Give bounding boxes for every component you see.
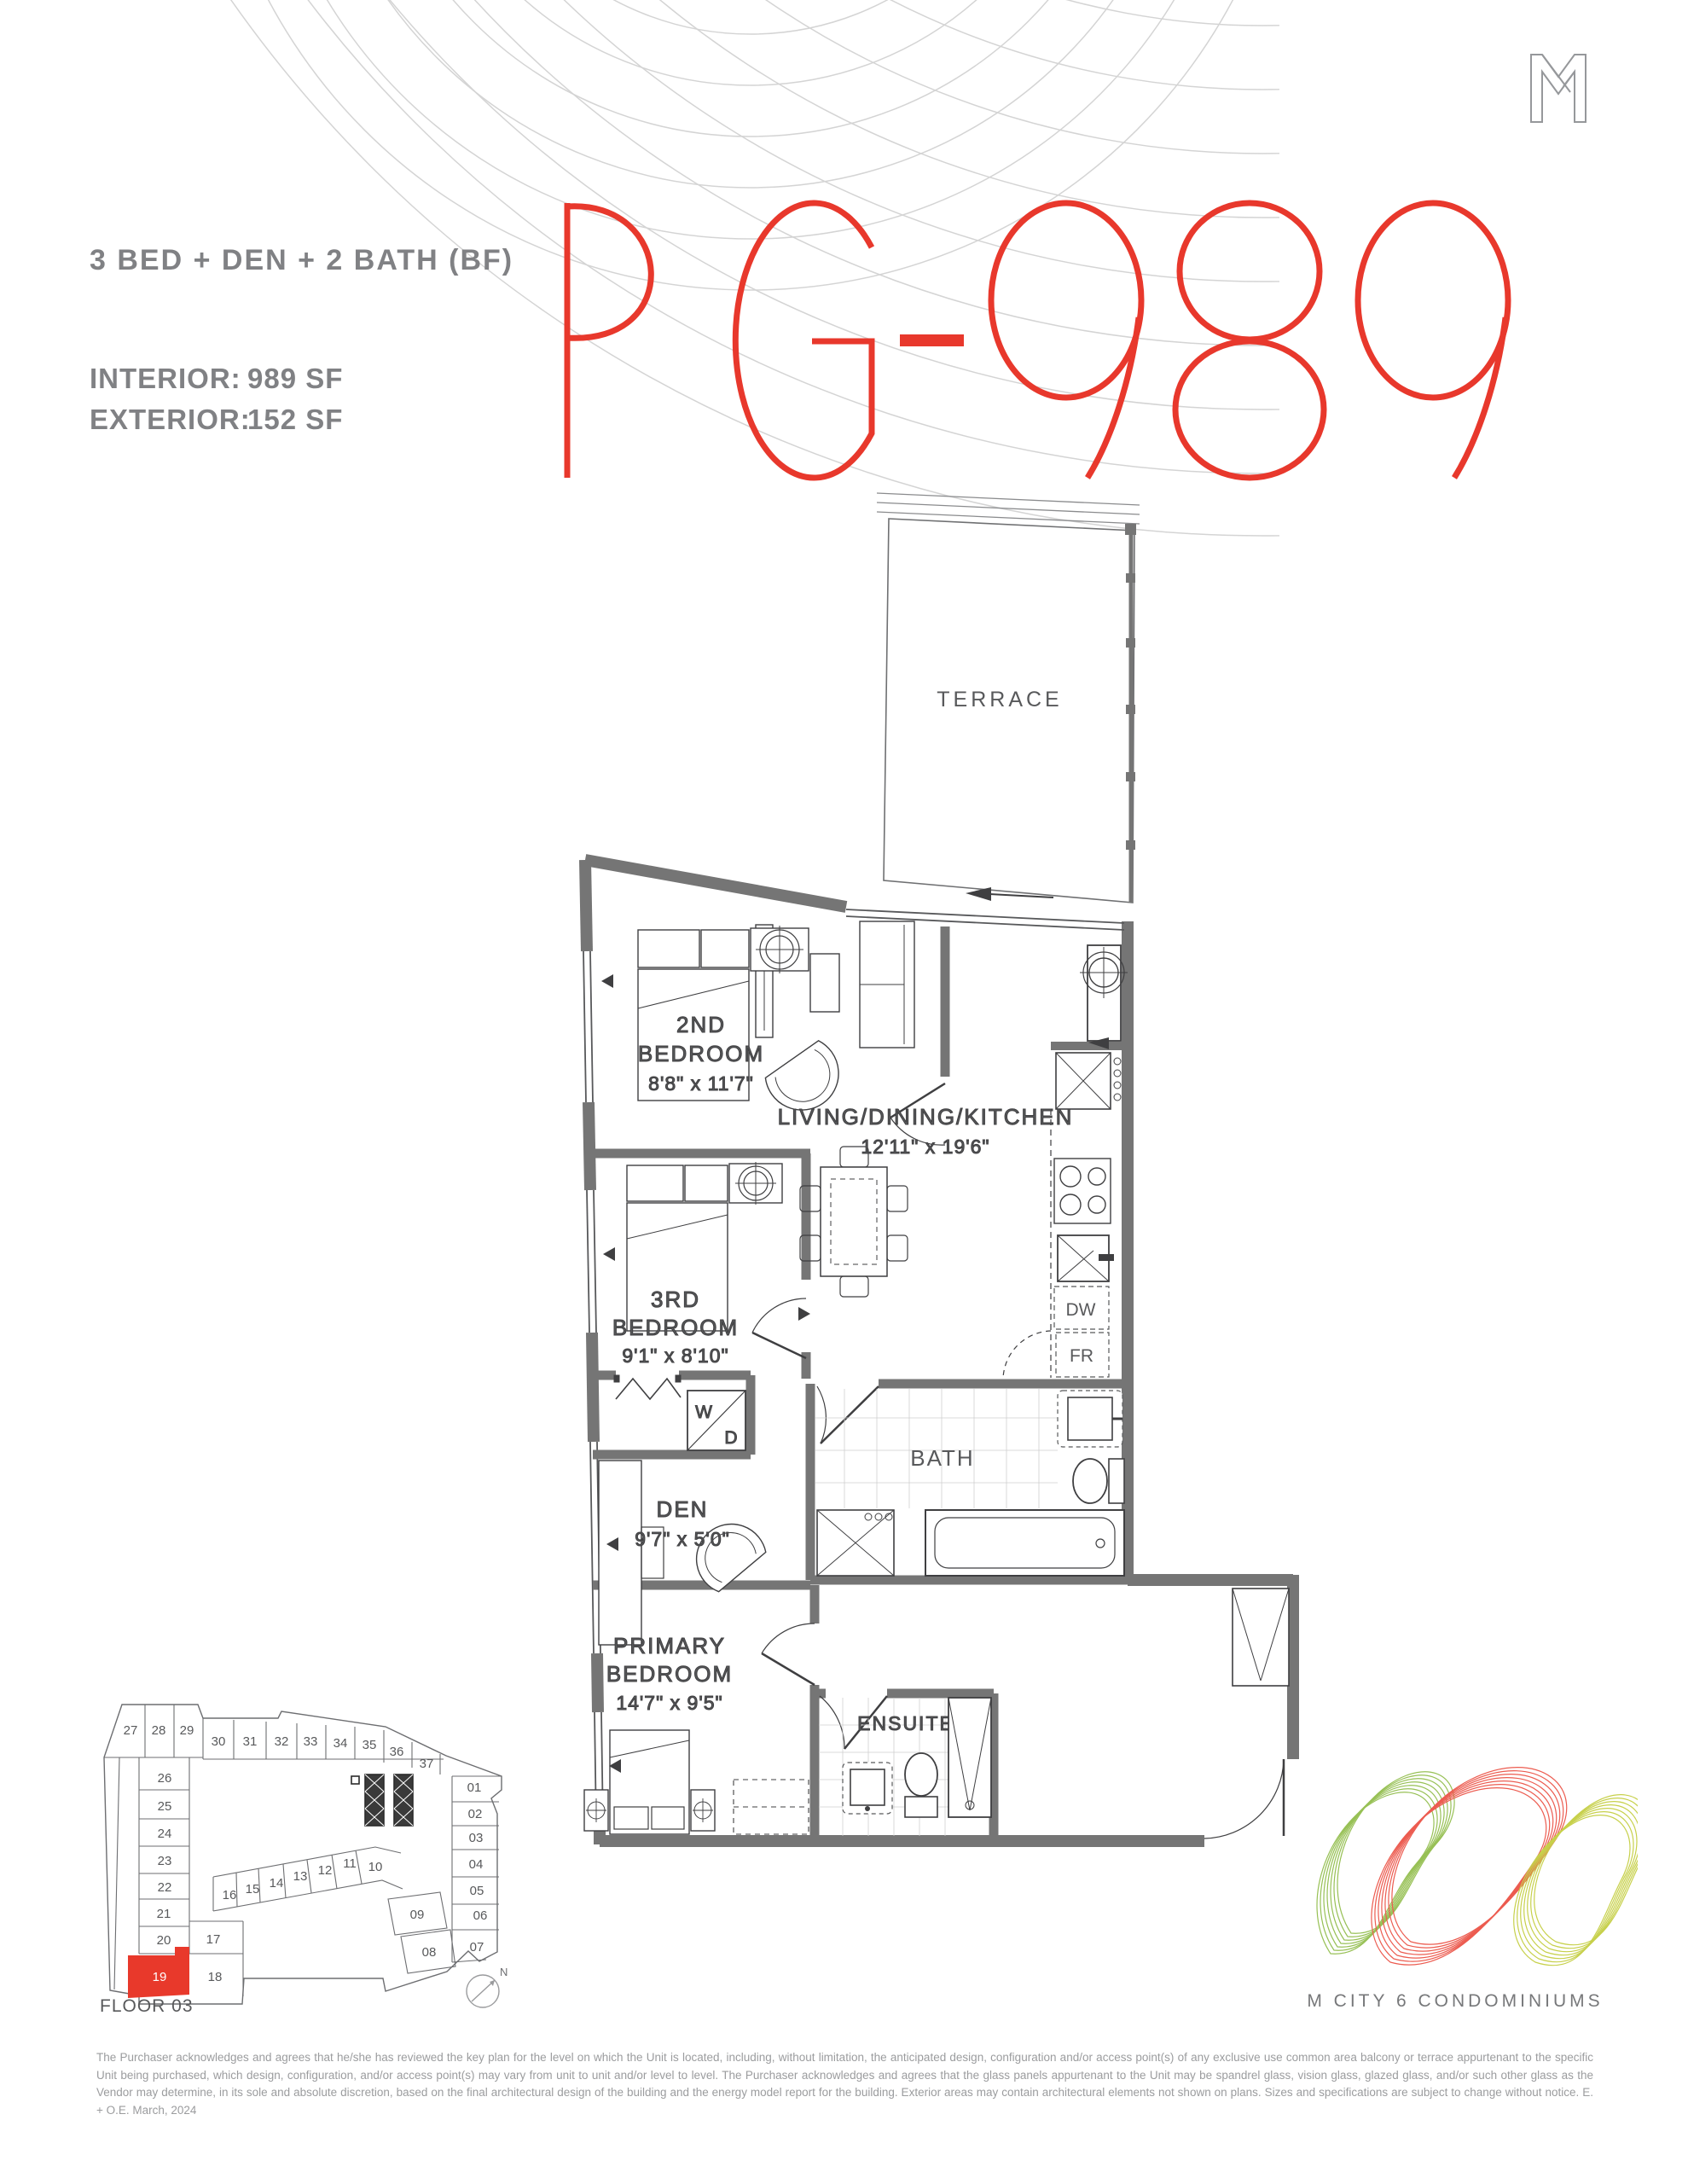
- bifold-closet-icon: [616, 1379, 681, 1399]
- keyplan-unit-14: 14: [270, 1876, 284, 1891]
- den-dims: 9'7" x 5'0": [635, 1528, 730, 1550]
- keyplan-unit-33: 33: [304, 1734, 318, 1749]
- keyplan-unit-30: 30: [212, 1734, 226, 1749]
- unit-type-label: 3 BED + DEN + 2 BATH (BF): [90, 244, 513, 277]
- keyplan-unit-09: 09: [410, 1908, 425, 1922]
- shower-icon: [948, 1698, 991, 1817]
- bath-toilet-icon: [1073, 1459, 1124, 1503]
- exterior-label: EXTERIOR:: [90, 404, 247, 436]
- desk-icon: [599, 1461, 641, 1645]
- living-dims: 12'11" x 19'6": [861, 1136, 989, 1158]
- unit-code-title: PG-989: [546, 171, 1552, 516]
- keyplan-unit-34: 34: [334, 1736, 348, 1751]
- keyplan-unit-03: 03: [469, 1831, 484, 1845]
- den: DEN 9'7" x 5'0": [599, 1461, 769, 1645]
- keyplan-unit-27: 27: [124, 1723, 138, 1738]
- washer-dryer-icon: W D: [687, 1391, 745, 1450]
- bedroom2-line2: BEDROOM: [638, 1041, 764, 1066]
- keyplan-unit-35: 35: [363, 1738, 377, 1752]
- nightstand-icon: [584, 1790, 608, 1831]
- keyplan-unit-24: 24: [158, 1827, 172, 1841]
- keyplan-unit-07: 07: [470, 1940, 484, 1955]
- keyplan-unit-21: 21: [157, 1907, 171, 1921]
- keyplan-unit-20: 20: [157, 1933, 171, 1948]
- keyplan-unit-31: 31: [243, 1734, 258, 1749]
- keyplan-unit-25: 25: [158, 1799, 172, 1814]
- keyplan-unit-22: 22: [158, 1880, 172, 1895]
- terrace: TERRACE: [877, 493, 1140, 903]
- keyplan-unit-10: 10: [368, 1860, 383, 1874]
- fridge-label: FR: [1070, 1346, 1093, 1366]
- stove-icon: [1054, 1159, 1111, 1223]
- keyplan-unit-29: 29: [180, 1723, 194, 1738]
- laundry-closet: W D: [614, 1375, 745, 1450]
- ceiling-light-icon: [729, 1162, 782, 1205]
- exterior-value: 152 SF: [247, 404, 343, 436]
- bath-vanity-icon: [1058, 1391, 1122, 1447]
- primary-dims: 14'7" x 9'5": [616, 1692, 722, 1714]
- keyplan-unit-12: 12: [318, 1863, 333, 1878]
- logo-ribbons: [1317, 1768, 1638, 1966]
- entry-closet-icon: [1233, 1589, 1289, 1686]
- keyplan-unit-06: 06: [473, 1908, 488, 1923]
- disclaimer-text: The Purchaser acknowledges and agrees th…: [96, 2049, 1593, 2119]
- bed-icon: [610, 1730, 689, 1834]
- bath-tub-icon: [925, 1510, 1124, 1576]
- unit-code-glyphs: [546, 171, 1552, 512]
- keyplan-unit-18: 18: [208, 1970, 223, 1984]
- ensuite-label: ENSUITE: [857, 1712, 954, 1734]
- bath-label: BATH: [910, 1445, 974, 1471]
- kitchen-sink-icon: [1058, 1235, 1114, 1281]
- compass-n-label: N: [500, 1966, 508, 1978]
- keyplan-unit-01: 01: [467, 1780, 482, 1795]
- dishwasher-label: DW: [1066, 1300, 1096, 1320]
- keyplan-unit-17: 17: [206, 1932, 221, 1947]
- ensuite: ENSUITE: [819, 1698, 991, 1836]
- sofa-icon: [860, 921, 914, 1048]
- keyplan-unit-16: 16: [223, 1888, 237, 1902]
- keyplan-unit-15: 15: [246, 1882, 260, 1896]
- keyplan-unit-37: 37: [420, 1757, 434, 1771]
- ottoman-icon: [810, 954, 839, 1012]
- key-plan: 2728293031323334353637010203040506072625…: [73, 1689, 516, 2022]
- keyplan-unit-19: 19: [153, 1970, 167, 1984]
- interior-value: 989 SF: [247, 363, 343, 395]
- interior-area-row: INTERIOR: 989 SF: [90, 363, 343, 395]
- primary-line1: PRIMARY: [613, 1633, 726, 1658]
- dryer-label: D: [724, 1428, 737, 1448]
- kitchen: DW FR: [1051, 945, 1128, 1378]
- primary-bedroom: PRIMARY BEDROOM 14'7" x 9'5": [584, 1633, 809, 1834]
- logo-text: M CITY 6 CONDOMINIUMS: [1307, 1991, 1603, 2011]
- floorplan-sheet: { "header": { "unit_type": "3 BED + DEN …: [0, 0, 1688, 2184]
- m-logo-icon: [1518, 47, 1604, 132]
- keyplan-unit-36: 36: [390, 1745, 404, 1759]
- nightstand-icon: [691, 1790, 715, 1831]
- bedroom3-line2: BEDROOM: [612, 1315, 739, 1340]
- keyplan-unit-11: 11: [343, 1856, 357, 1871]
- terrace-label: TERRACE: [937, 688, 1062, 712]
- kitchen-pantry-icon: [1056, 1053, 1121, 1109]
- ceiling-light-icon: [751, 926, 809, 973]
- compass-icon: [467, 1975, 499, 2007]
- fridge-icon: FR: [1056, 1333, 1109, 1377]
- washer-label: W: [695, 1403, 712, 1422]
- bedroom2-line1: 2ND: [676, 1012, 726, 1037]
- keyplan-unit-08: 08: [422, 1945, 437, 1960]
- dining-table-icon: [800, 1147, 908, 1297]
- keyplan-unit-26: 26: [158, 1771, 172, 1786]
- keyplan-unit-13: 13: [293, 1869, 308, 1884]
- bath-cabinet-icon: [817, 1510, 894, 1576]
- keyplan-unit-05: 05: [470, 1884, 484, 1898]
- keyplan-unit-23: 23: [158, 1854, 172, 1868]
- interior-label: INTERIOR:: [90, 363, 247, 395]
- keyplan-unit-04: 04: [469, 1857, 484, 1872]
- living-label: LIVING/DINING/KITCHEN: [778, 1104, 1074, 1130]
- keyplan-unit-28: 28: [152, 1723, 166, 1738]
- kitchen-tall-cabinet-icon: [1080, 945, 1128, 1049]
- floor-label: FLOOR 03: [100, 1996, 194, 2016]
- exterior-area-row: EXTERIOR: 152 SF: [90, 404, 343, 436]
- keyplan-unit-32: 32: [275, 1734, 289, 1749]
- bedroom3-dims: 9'1" x 8'10": [622, 1345, 728, 1367]
- dishwasher-icon: DW: [1054, 1287, 1109, 1329]
- den-label: DEN: [657, 1496, 709, 1522]
- ensuite-toilet-icon: [905, 1753, 937, 1817]
- ensuite-sink-icon: [843, 1763, 892, 1814]
- keyplan-unit-02: 02: [468, 1807, 483, 1821]
- bathroom: BATH: [815, 1389, 1124, 1576]
- floor-plan: TERRACE: [546, 478, 1314, 1860]
- primary-line2: BEDROOM: [606, 1661, 733, 1687]
- bedroom3-line1: 3RD: [651, 1287, 700, 1312]
- mcity-logo: M CITY 6 CONDOMINIUMS: [1296, 1757, 1638, 2022]
- bedroom-3: 3RD BEDROOM 9'1" x 8'10": [612, 1162, 782, 1367]
- bedroom2-dims: 8'8" x 11'7": [648, 1072, 754, 1095]
